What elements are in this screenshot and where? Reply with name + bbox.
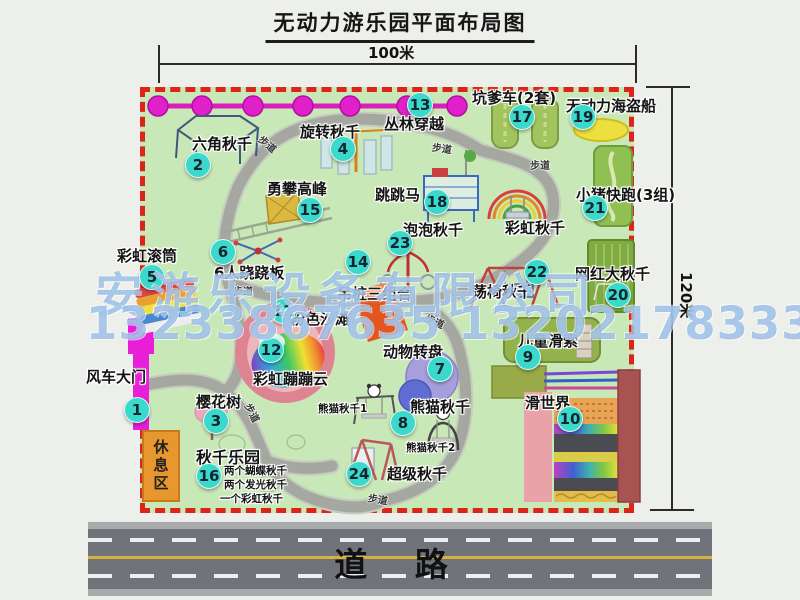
label-six-seesaw: 6人跷跷板 [214, 262, 284, 283]
badge-2: 2 [185, 152, 211, 178]
badge-1: 1 [124, 397, 150, 423]
rest-area: 休息区 [142, 430, 180, 502]
walkway-label: 步道 [431, 139, 453, 157]
badge-5: 5 [139, 264, 165, 290]
badge-21: 21 [582, 195, 608, 221]
badge-12: 12 [258, 337, 284, 363]
dimension-tick [635, 45, 637, 83]
rest-area-label: 休息区 [151, 439, 172, 493]
badge-24: 24 [346, 461, 372, 487]
dimension-tick [158, 45, 160, 83]
badge-16: 16 [196, 463, 222, 489]
dimension-tick [646, 86, 690, 88]
dimension-line-top [160, 63, 637, 65]
label-panda-swing: 熊猫秋千 [410, 396, 470, 417]
dimension-tick [650, 509, 694, 511]
badge-7: 7 [427, 356, 453, 382]
park-layout-map: 无动力游乐园平面布局图 100米 120米 [0, 0, 800, 600]
badge-13: 13 [407, 92, 433, 118]
label-big-swing: 网红大秋千 [575, 263, 650, 284]
badge-20: 20 [605, 282, 631, 308]
label-rainbow-bounce-cloud: 彩虹蹦蹦云 [253, 368, 328, 389]
label-super-swing: 超级秋千 [387, 463, 447, 484]
badge-15: 15 [297, 197, 323, 223]
dimension-line-right [671, 86, 673, 510]
badge-18: 18 [424, 189, 450, 215]
walkway-label: 步道 [367, 489, 389, 507]
badge-6: 6 [210, 239, 236, 265]
label-pink-beach: 粉色沙滩 [290, 308, 350, 329]
page-title: 无动力游乐园平面布局图 [266, 7, 535, 43]
badge-8: 8 [390, 410, 416, 436]
label-hexagon-swing: 六角秋千 [192, 133, 252, 154]
badge-14: 14 [345, 249, 371, 275]
road: 道 路 [88, 522, 712, 596]
label-climbing-peak: 勇攀高峰 [267, 178, 327, 199]
badge-17: 17 [509, 104, 535, 130]
dimension-height-label: 120米 [676, 272, 697, 318]
badge-4: 4 [330, 136, 356, 162]
badge-19: 19 [570, 104, 596, 130]
label-panda-swing-2: 熊猫秋千2 [406, 440, 455, 455]
label-swing-chair: 荡椅秋千 [472, 281, 532, 302]
label-rainbow-swing: 彩虹秋千 [505, 217, 565, 238]
dimension-width-label: 100米 [368, 42, 414, 63]
label-pit-cart: 坑爹车(2套) [472, 87, 556, 108]
badge-23: 23 [387, 230, 413, 256]
label-panda-swing-1: 熊猫秋千1 [318, 401, 367, 416]
label-rainbow-roller: 彩虹滚筒 [117, 245, 177, 266]
badge-3: 3 [203, 408, 229, 434]
label-bubble-swing: 泡泡秋千 [403, 219, 463, 240]
label-swing-park-line1: 两个蝴蝶秋千 [224, 463, 287, 478]
label-swing-park-line2: 两个发光秋千 [224, 477, 287, 492]
walkway-label: 步道 [233, 283, 253, 298]
label-windmill-gate: 风车大门 [86, 366, 146, 387]
label-hanging-post-combo: 吊桩三组合 [337, 283, 412, 304]
badge-10: 10 [557, 406, 583, 432]
label-jumping-horse: 跳跳马 [375, 184, 420, 205]
badge-11: 11 [270, 298, 296, 324]
walkway-label: 步道 [530, 157, 550, 172]
badge-22: 22 [524, 259, 550, 285]
road-label: 道 路 [88, 538, 712, 586]
badge-9: 9 [515, 344, 541, 370]
label-swing-park-line3: 一个彩虹秋千 [220, 491, 283, 506]
